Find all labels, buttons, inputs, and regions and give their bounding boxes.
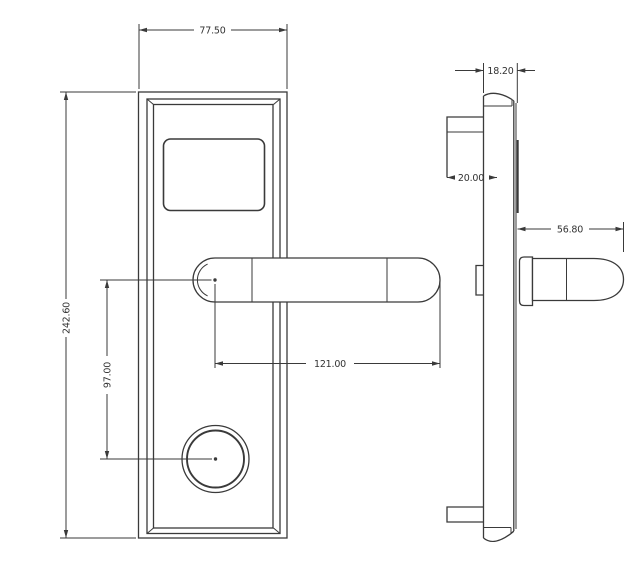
dimension-depth-18-20: 18.20: [455, 63, 535, 103]
side-handle-body: [533, 259, 624, 301]
side-card-window-rim: [517, 140, 519, 213]
side-spindle-bump: [476, 266, 484, 296]
technical-drawing-canvas: 77.50 242.60 97.00 121.00: [0, 0, 636, 566]
dim-height-label: 242.60: [62, 302, 73, 334]
door-lock-drawing: 77.50 242.60 97.00 121.00: [0, 0, 636, 566]
side-handle-base: [520, 257, 533, 306]
side-mortise-box-top: [447, 117, 484, 178]
dimension-width-77-50: 77.50: [139, 24, 287, 89]
dim-depth-label: 18.20: [487, 66, 513, 77]
arrowhead-right: [489, 175, 497, 179]
handle-front: [193, 258, 440, 302]
arrowhead-left: [139, 28, 147, 32]
side-mortise-box-bottom: [447, 507, 484, 522]
arrowhead-left: [447, 175, 455, 179]
side-view: [447, 93, 624, 541]
arrowhead-down: [64, 530, 68, 538]
dim-offset-label: 97.00: [103, 362, 114, 388]
corner-bevel-top-right: [274, 99, 281, 105]
front-plate-inner: [154, 105, 274, 529]
corner-bevel-bottom-right: [274, 528, 281, 534]
arrowhead-left: [215, 361, 223, 365]
dimension-handle-depth-56-80: 56.80: [518, 222, 624, 252]
dim-width-label: 77.50: [199, 26, 225, 37]
arrowhead-right: [616, 227, 624, 231]
dimension-height-242-60: 242.60: [60, 92, 136, 538]
side-bottom-cap-curve: [484, 531, 514, 541]
arrowhead-up: [105, 280, 109, 288]
dim-handle-depth-label: 56.80: [557, 225, 583, 236]
arrowhead-right: [432, 361, 440, 365]
dimension-mortise-20-00: 20.00: [447, 173, 497, 184]
arrowhead-down: [105, 451, 109, 459]
center-dot-handle: [213, 278, 216, 281]
corner-bevel-top-left: [147, 99, 154, 105]
dim-mortise-label: 20.00: [458, 173, 484, 184]
corner-bevel-bottom-left: [147, 528, 154, 534]
arrowhead-left: [517, 68, 525, 72]
card-reader-window: [164, 139, 265, 211]
front-plate-mid: [147, 99, 280, 534]
arrowhead-right: [476, 68, 484, 72]
side-top-cap-curve: [484, 93, 513, 99]
center-dot-cylinder: [214, 457, 217, 460]
dimension-offset-97-00: 97.00: [100, 278, 217, 460]
front-view: [139, 92, 441, 538]
arrowhead-left: [518, 227, 526, 231]
arrowhead-up: [64, 92, 68, 100]
arrowhead-right: [279, 28, 287, 32]
dim-handle-length-label: 121.00: [314, 359, 346, 370]
